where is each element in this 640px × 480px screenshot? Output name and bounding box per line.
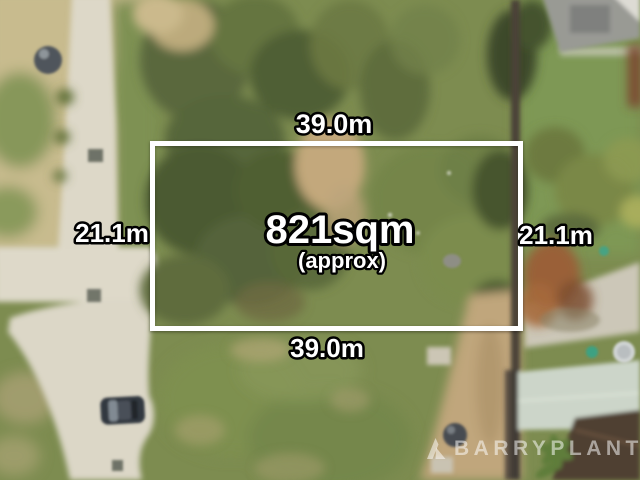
watermark: BARRYPLANT [424,437,640,460]
property-boundary-overlay [150,141,523,331]
barry-plant-logo-icon [424,437,447,460]
watermark-text: BARRYPLANT [454,438,640,459]
listing-photo: 39.0m 39.0m 21.1m 21.1m 821sqm (approx) … [0,0,640,480]
